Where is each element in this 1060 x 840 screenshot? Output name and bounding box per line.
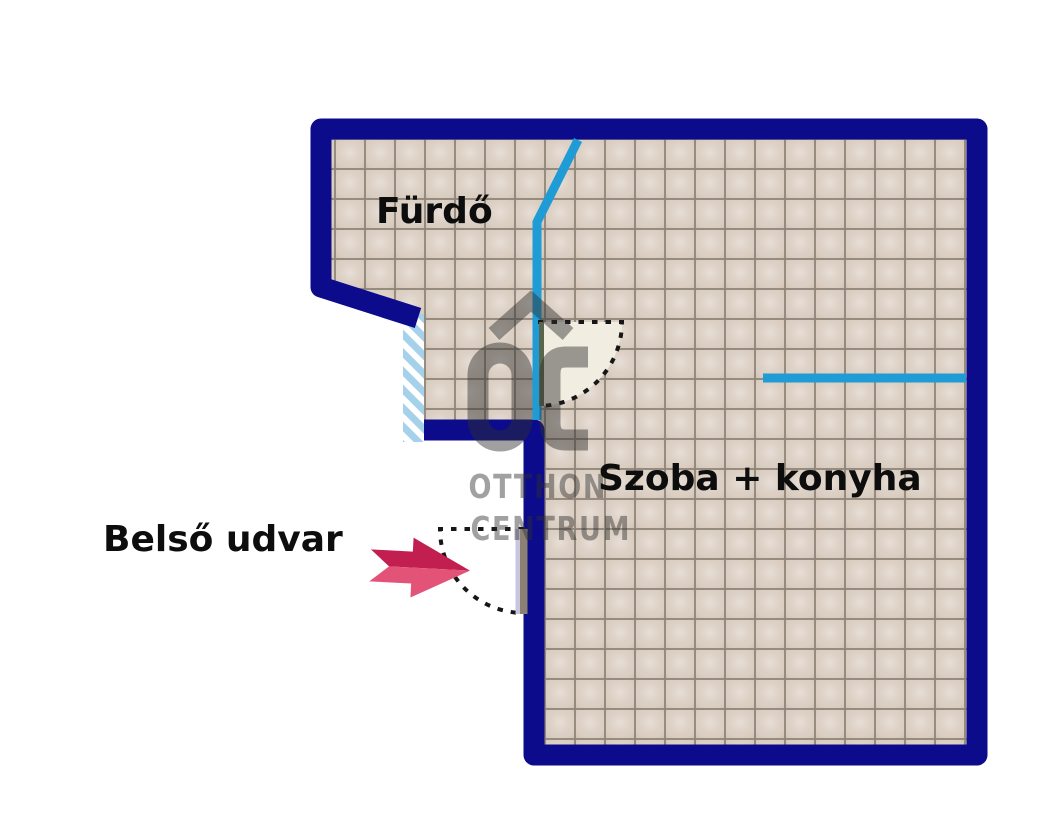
room-label-furdo: Fürdő (376, 192, 493, 232)
watermark-line2: CENTRUM (470, 512, 611, 547)
floorplan-canvas: OTTHON CENTRUM Fürdő Szoba + konyha Bels… (0, 0, 1060, 840)
entrance-arrow-top (370, 535, 471, 570)
outside-label-belso-udvar: Belső udvar (103, 520, 343, 560)
window-hatch (403, 314, 424, 442)
floorplan-drawing (0, 0, 1060, 840)
room-label-szoba-konyha: Szoba + konyha (598, 459, 922, 499)
entrance-arrow-icon (368, 535, 471, 600)
watermark-line1: OTTHON (469, 470, 592, 505)
entrance-arrow-bottom (368, 565, 469, 600)
